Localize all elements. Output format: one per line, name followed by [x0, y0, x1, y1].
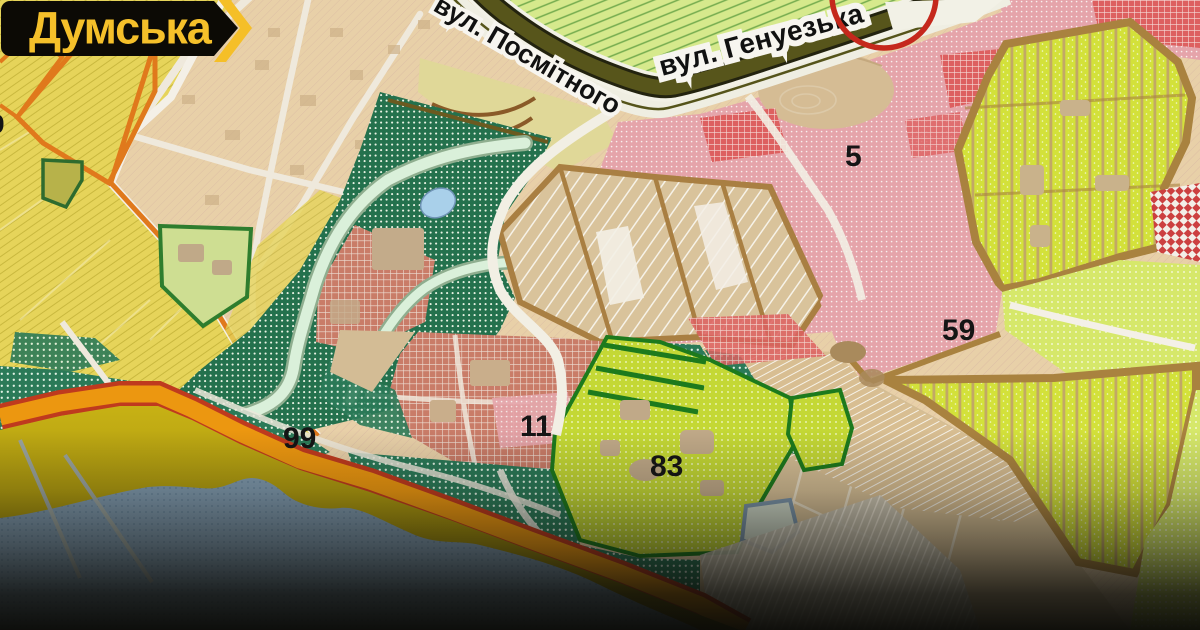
svg-text:Думська: Думська — [29, 3, 213, 54]
svg-text:5: 5 — [845, 140, 862, 173]
svg-text:9: 9 — [0, 109, 4, 139]
svg-text:59: 59 — [942, 314, 975, 347]
